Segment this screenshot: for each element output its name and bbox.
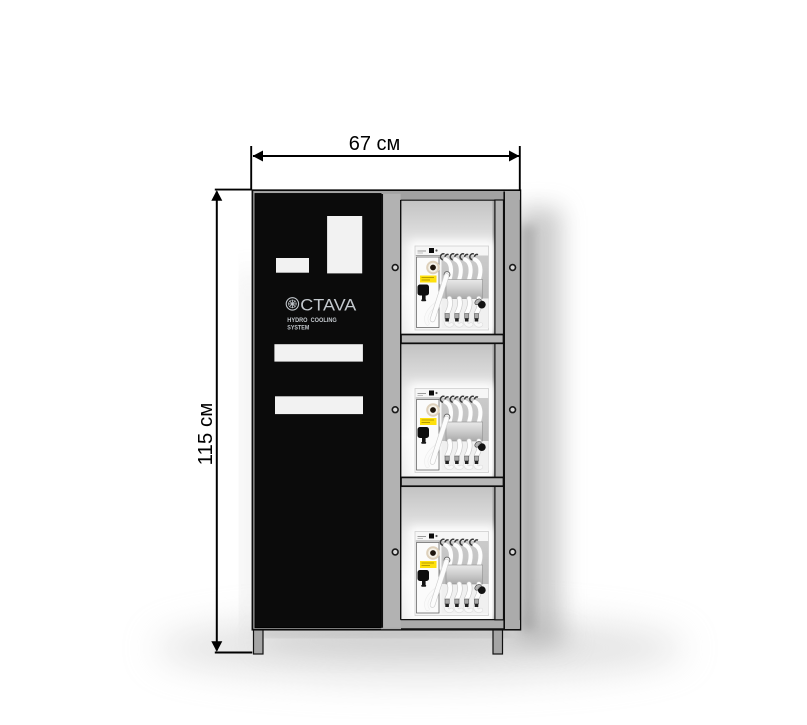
svg-text:67 см: 67 см <box>349 133 401 155</box>
svg-text:CTAVA: CTAVA <box>300 296 356 314</box>
svg-text:SYSTEM: SYSTEM <box>287 325 309 331</box>
svg-text:115 см: 115 см <box>194 403 217 466</box>
svg-text:HYDRO COOLING: HYDRO COOLING <box>287 318 337 324</box>
